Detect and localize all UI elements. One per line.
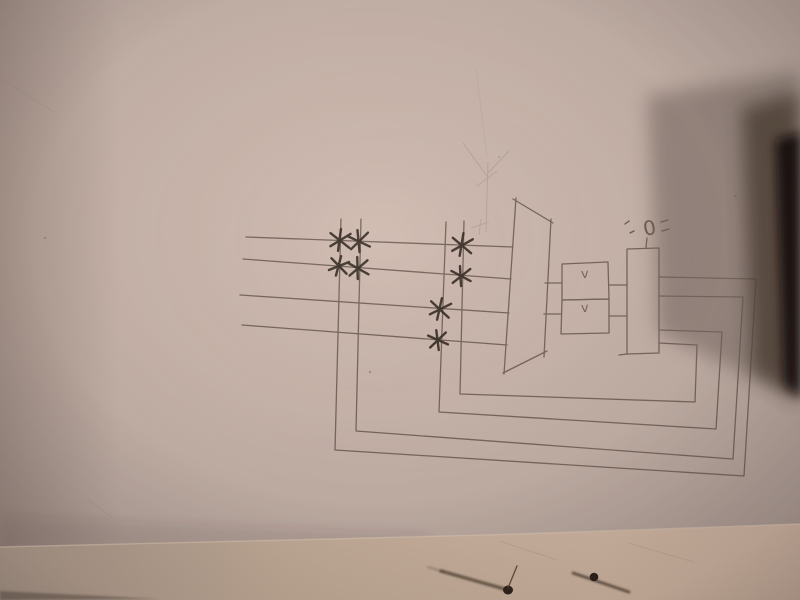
photo-of-hand-drawn-schematic: v v 0 [0, 0, 800, 600]
sketch-photo-svg: v v 0 [0, 0, 800, 600]
vignette-overlay [0, 0, 800, 600]
